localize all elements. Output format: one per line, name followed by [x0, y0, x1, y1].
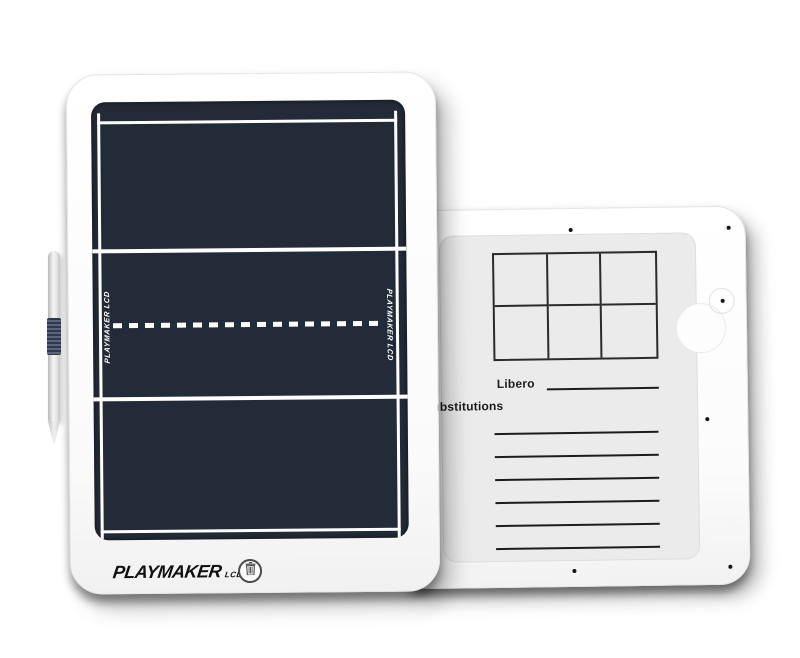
libero-blank-line [547, 387, 659, 391]
front-tablet: PLAYMAKER LCD PLAYMAKER LCD PLAYMAKER LC… [66, 71, 441, 594]
lineup-grid-cell [601, 253, 655, 306]
screen-brand-label-right: PLAYMAKER LCD [385, 288, 395, 361]
product-photo: Libero Substitutions PLAYMAKER [0, 0, 800, 658]
lineup-grid-cell [494, 254, 548, 307]
note-line [495, 477, 659, 481]
note-line [495, 500, 659, 504]
note-line [496, 546, 660, 550]
court-endline-bottom [101, 528, 401, 534]
lineup-grid-cell [602, 305, 656, 358]
lineup-grid-cell [548, 254, 602, 307]
libero-label: Libero [497, 377, 535, 392]
brand-logo-text: PLAYMAKER [112, 560, 223, 583]
court-attack-line-bottom [94, 395, 408, 402]
lineup-grid-cell [548, 306, 602, 359]
whiteboard-insert-panel: Libero Substitutions [439, 232, 701, 563]
court-sideline-right [394, 111, 401, 541]
note-line [494, 431, 658, 435]
stylus [47, 251, 61, 447]
trash-icon [244, 562, 255, 580]
note-line [496, 523, 660, 527]
lineup-grid [492, 251, 658, 361]
screw-dot [572, 569, 576, 573]
stylus-tip [48, 421, 60, 445]
screen-brand-label-left: PLAYMAKER LCD [102, 291, 112, 364]
back-tablet: Libero Substitutions [392, 206, 750, 590]
screw-dot [727, 226, 731, 230]
erase-button [238, 559, 262, 583]
court-attack-line-top [92, 247, 406, 254]
note-line [495, 454, 659, 458]
stylus-grip [47, 318, 61, 355]
brand-logo: PLAYMAKER LCD [112, 560, 245, 583]
screw-dot [728, 565, 732, 569]
screw-dot [569, 228, 573, 232]
court-net-dashed-line [113, 321, 379, 328]
screw-dot [721, 299, 725, 303]
lineup-grid-cell [495, 306, 549, 359]
screw-dot [705, 417, 709, 421]
lcd-screen: PLAYMAKER LCD PLAYMAKER LCD [91, 100, 409, 541]
court-endline-top [97, 119, 397, 125]
